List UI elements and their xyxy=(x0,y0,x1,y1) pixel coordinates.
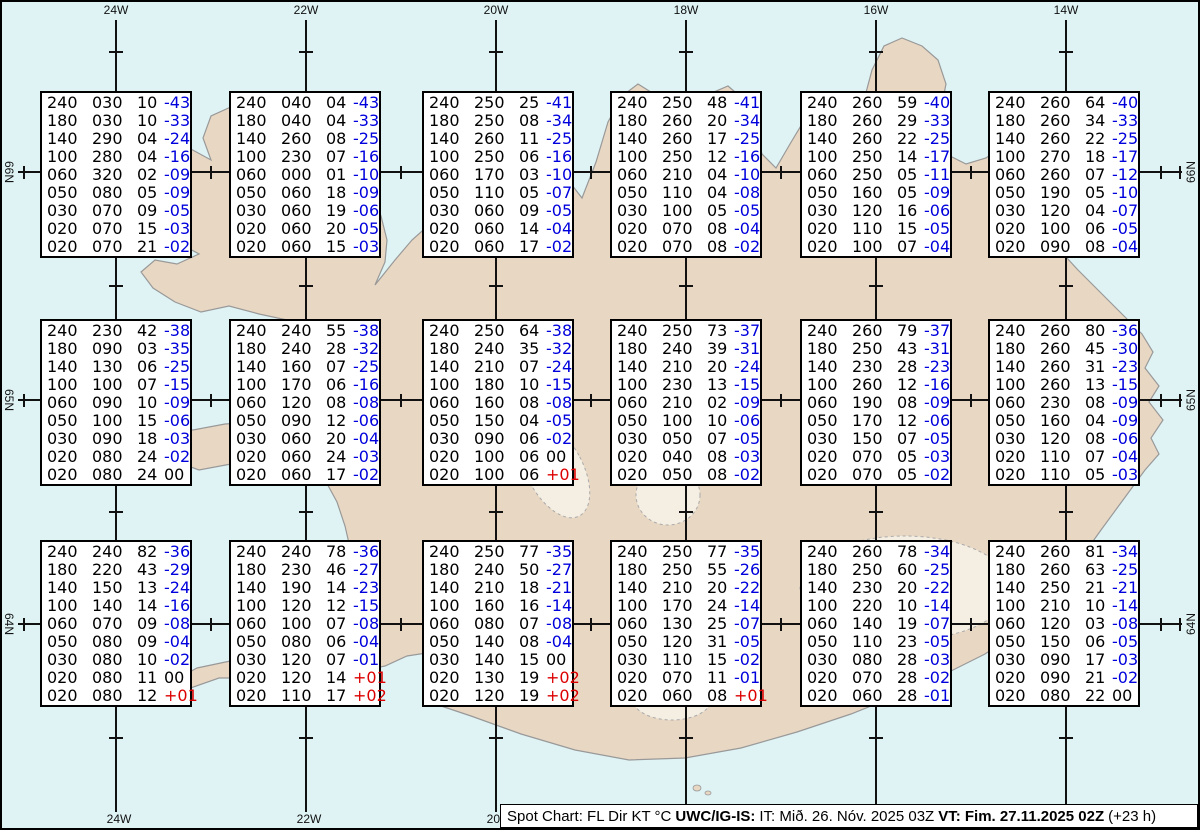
temp-cell: -02 xyxy=(546,238,578,256)
temp-cell: +01 xyxy=(164,687,204,705)
spot-row: 03006009-05 xyxy=(429,202,572,220)
kt-cell: 08 xyxy=(326,130,353,148)
temp-cell: -38 xyxy=(546,322,578,340)
dir-cell: 250 xyxy=(474,322,519,340)
dir-cell: 240 xyxy=(92,543,137,561)
temp-cell: -09 xyxy=(1112,394,1144,412)
fl-cell: 020 xyxy=(429,220,474,238)
dir-cell: 060 xyxy=(281,238,326,256)
spot-row: 18023046-27 xyxy=(236,561,379,579)
dir-cell: 040 xyxy=(281,94,326,112)
spot-row: 03008010-02 xyxy=(47,651,190,669)
fl-cell: 030 xyxy=(617,202,662,220)
kt-cell: 08 xyxy=(707,220,734,238)
fl-cell: 060 xyxy=(429,394,474,412)
temp-cell: -05 xyxy=(1112,633,1144,651)
temp-cell: -05 xyxy=(546,412,578,430)
fl-cell: 100 xyxy=(617,376,662,394)
fl-cell: 050 xyxy=(617,633,662,651)
dir-cell: 250 xyxy=(852,340,897,358)
temp-cell: -16 xyxy=(924,376,956,394)
fl-cell: 020 xyxy=(617,220,662,238)
kt-cell: 12 xyxy=(137,687,164,705)
spot-row: 05011004-08 xyxy=(617,184,760,202)
temp-cell: +01 xyxy=(734,687,774,705)
fl-cell: 050 xyxy=(429,633,474,651)
fl-cell: 140 xyxy=(429,579,474,597)
fl-cell: 240 xyxy=(995,543,1040,561)
fl-cell: 180 xyxy=(995,340,1040,358)
spot-row: 06021004-10 xyxy=(617,166,760,184)
dir-cell: 050 xyxy=(662,430,707,448)
temp-cell: -02 xyxy=(734,238,766,256)
dir-cell: 090 xyxy=(92,394,137,412)
spot-row: 24026078-34 xyxy=(807,543,950,561)
dir-cell: 260 xyxy=(1040,376,1085,394)
dir-cell: 240 xyxy=(281,340,326,358)
spot-boxes: 24003010-4318003010-3314029004-241002800… xyxy=(2,2,1198,828)
kt-cell: 06 xyxy=(326,376,353,394)
temp-cell: -06 xyxy=(924,202,956,220)
fl-cell: 140 xyxy=(995,358,1040,376)
dir-cell: 230 xyxy=(281,148,326,166)
kt-cell: 13 xyxy=(1085,376,1112,394)
kt-cell: 15 xyxy=(137,412,164,430)
temp-cell: -06 xyxy=(164,412,196,430)
fl-cell: 020 xyxy=(995,466,1040,484)
spot-row: 14021007-24 xyxy=(429,358,572,376)
fl-cell: 020 xyxy=(47,238,92,256)
temp-cell: -37 xyxy=(924,322,956,340)
footer-legend: Spot Chart: FL Dir KT °C xyxy=(507,808,671,825)
fl-cell: 240 xyxy=(807,322,852,340)
spot-row: 18026045-30 xyxy=(995,340,1138,358)
temp-cell: -43 xyxy=(164,94,196,112)
fl-cell: 030 xyxy=(429,651,474,669)
fl-cell: 020 xyxy=(236,220,281,238)
kt-cell: 59 xyxy=(897,94,924,112)
fl-cell: 030 xyxy=(995,651,1040,669)
dir-cell: 220 xyxy=(92,561,137,579)
temp-cell: -23 xyxy=(1112,358,1144,376)
fl-cell: 020 xyxy=(995,669,1040,687)
kt-cell: 06 xyxy=(1085,633,1112,651)
fl-cell: 140 xyxy=(236,579,281,597)
fl-cell: 060 xyxy=(47,615,92,633)
kt-cell: 17 xyxy=(519,238,546,256)
fl-cell: 020 xyxy=(47,220,92,238)
dir-cell: 060 xyxy=(281,430,326,448)
temp-cell: -02 xyxy=(353,466,385,484)
fl-cell: 050 xyxy=(47,184,92,202)
spot-row: 02007008-04 xyxy=(617,220,760,238)
fl-cell: 140 xyxy=(47,130,92,148)
kt-cell: 64 xyxy=(1085,94,1112,112)
kt-cell: 05 xyxy=(897,184,924,202)
kt-cell: 04 xyxy=(519,412,546,430)
kt-cell: 04 xyxy=(137,130,164,148)
fl-cell: 240 xyxy=(429,322,474,340)
spot-row: 02006014-04 xyxy=(429,220,572,238)
fl-cell: 020 xyxy=(236,687,281,705)
temp-cell: -08 xyxy=(353,615,385,633)
spot-row: 14026017-25 xyxy=(617,130,760,148)
fl-cell: 240 xyxy=(617,322,662,340)
kt-cell: 08 xyxy=(326,394,353,412)
dir-cell: 210 xyxy=(662,394,707,412)
kt-cell: 10 xyxy=(137,394,164,412)
spot-row: 02009008-04 xyxy=(995,238,1138,256)
fl-cell: 140 xyxy=(807,579,852,597)
temp-cell: -25 xyxy=(924,561,956,579)
spot-row: 18025055-26 xyxy=(617,561,760,579)
dir-cell: 080 xyxy=(1040,687,1085,705)
fl-cell: 050 xyxy=(429,184,474,202)
fl-cell: 180 xyxy=(617,340,662,358)
kt-cell: 06 xyxy=(519,148,546,166)
dir-cell: 040 xyxy=(281,112,326,130)
temp-cell: -32 xyxy=(546,340,578,358)
temp-cell: -05 xyxy=(546,202,578,220)
dir-cell: 120 xyxy=(662,633,707,651)
temp-cell: -04 xyxy=(353,430,385,448)
spot-row: 10026013-15 xyxy=(995,376,1138,394)
dir-cell: 230 xyxy=(852,579,897,597)
kt-cell: 15 xyxy=(519,651,546,669)
fl-cell: 180 xyxy=(617,561,662,579)
temp-cell: -06 xyxy=(924,412,956,430)
spot-row: 06012008-08 xyxy=(236,394,379,412)
temp-cell: -04 xyxy=(1112,448,1144,466)
dir-cell: 180 xyxy=(474,376,519,394)
dir-cell: 060 xyxy=(474,202,519,220)
fl-cell: 240 xyxy=(236,543,281,561)
kt-cell: 28 xyxy=(897,651,924,669)
dir-cell: 210 xyxy=(1040,597,1085,615)
fl-cell: 030 xyxy=(236,651,281,669)
kt-cell: 64 xyxy=(519,322,546,340)
spot-row: 10025006-16 xyxy=(429,148,572,166)
temp-cell: -04 xyxy=(1112,238,1144,256)
spot-row: 14021018-21 xyxy=(429,579,572,597)
temp-cell: -05 xyxy=(1112,220,1144,238)
temp-cell: -03 xyxy=(353,448,385,466)
dir-cell: 080 xyxy=(92,448,137,466)
kt-cell: 31 xyxy=(707,633,734,651)
temp-cell: -25 xyxy=(1112,130,1144,148)
temp-cell: -06 xyxy=(1112,430,1144,448)
footer-forecast-offset: (+23 h) xyxy=(1108,808,1156,825)
dir-cell: 080 xyxy=(474,615,519,633)
kt-cell: 11 xyxy=(519,130,546,148)
kt-cell: 06 xyxy=(519,466,546,484)
kt-cell: 10 xyxy=(897,597,924,615)
temp-cell: 00 xyxy=(1112,687,1138,705)
temp-cell: -08 xyxy=(1112,615,1144,633)
fl-cell: 140 xyxy=(236,130,281,148)
dir-cell: 050 xyxy=(662,466,707,484)
fl-cell: 020 xyxy=(236,448,281,466)
dir-cell: 190 xyxy=(1040,184,1085,202)
kt-cell: 03 xyxy=(1085,615,1112,633)
dir-cell: 110 xyxy=(852,220,897,238)
fl-cell: 020 xyxy=(617,669,662,687)
fl-cell: 060 xyxy=(236,166,281,184)
fl-cell: 240 xyxy=(47,322,92,340)
spot-row: 02012019+02 xyxy=(429,687,572,705)
kt-cell: 39 xyxy=(707,340,734,358)
dir-cell: 170 xyxy=(662,597,707,615)
dir-cell: 260 xyxy=(1040,561,1085,579)
kt-cell: 78 xyxy=(326,543,353,561)
spot-row: 18026063-25 xyxy=(995,561,1138,579)
fl-cell: 030 xyxy=(47,202,92,220)
spot-row: 06021002-09 xyxy=(617,394,760,412)
spot-row: 05010010-06 xyxy=(617,412,760,430)
dir-cell: 100 xyxy=(662,412,707,430)
kt-cell: 24 xyxy=(326,448,353,466)
fl-cell: 030 xyxy=(617,651,662,669)
fl-cell: 060 xyxy=(429,166,474,184)
fl-cell: 180 xyxy=(807,561,852,579)
dir-cell: 120 xyxy=(281,597,326,615)
fl-cell: 050 xyxy=(236,184,281,202)
kt-cell: 19 xyxy=(897,615,924,633)
dir-cell: 090 xyxy=(1040,669,1085,687)
temp-cell: -25 xyxy=(1112,561,1144,579)
dir-cell: 260 xyxy=(281,130,326,148)
dir-cell: 120 xyxy=(281,669,326,687)
kt-cell: 24 xyxy=(137,466,164,484)
temp-cell: -22 xyxy=(924,579,956,597)
spot-row: 06013025-07 xyxy=(617,615,760,633)
dir-cell: 100 xyxy=(92,412,137,430)
fl-cell: 240 xyxy=(995,94,1040,112)
temp-cell: +02 xyxy=(546,669,586,687)
spot-row: 02006008+01 xyxy=(617,687,760,705)
fl-cell: 060 xyxy=(995,394,1040,412)
dir-cell: 170 xyxy=(474,166,519,184)
fl-cell: 050 xyxy=(807,633,852,651)
temp-cell: -01 xyxy=(353,651,385,669)
spot-row: 05008009-04 xyxy=(47,633,190,651)
fl-cell: 180 xyxy=(617,112,662,130)
kt-cell: 25 xyxy=(519,94,546,112)
temp-cell: -31 xyxy=(734,340,766,358)
fl-cell: 140 xyxy=(47,358,92,376)
spot-row: 24023042-38 xyxy=(47,322,190,340)
temp-cell: -34 xyxy=(1112,543,1144,561)
kt-cell: 79 xyxy=(897,322,924,340)
temp-cell: -14 xyxy=(1112,597,1144,615)
temp-cell: -25 xyxy=(924,130,956,148)
dir-cell: 260 xyxy=(1040,358,1085,376)
temp-cell: -16 xyxy=(164,597,196,615)
temp-cell: -06 xyxy=(734,412,766,430)
kt-cell: 05 xyxy=(707,202,734,220)
kt-cell: 08 xyxy=(1085,238,1112,256)
dir-cell: 260 xyxy=(1040,112,1085,130)
kt-cell: 24 xyxy=(707,597,734,615)
dir-cell: 090 xyxy=(92,340,137,358)
kt-cell: 45 xyxy=(1085,340,1112,358)
dir-cell: 090 xyxy=(281,412,326,430)
dir-cell: 100 xyxy=(474,466,519,484)
temp-cell: -36 xyxy=(353,543,385,561)
kt-cell: 78 xyxy=(897,543,924,561)
dir-cell: 090 xyxy=(1040,651,1085,669)
fl-cell: 140 xyxy=(807,358,852,376)
spot-box: 24025077-3518024050-2714021018-211001601… xyxy=(422,540,574,707)
temp-cell: -03 xyxy=(164,430,196,448)
dir-cell: 080 xyxy=(92,184,137,202)
kt-cell: 55 xyxy=(707,561,734,579)
dir-cell: 120 xyxy=(852,202,897,220)
temp-cell: -05 xyxy=(924,430,956,448)
kt-cell: 20 xyxy=(707,579,734,597)
kt-cell: 63 xyxy=(1085,561,1112,579)
kt-cell: 08 xyxy=(707,687,734,705)
temp-cell: -25 xyxy=(734,130,766,148)
dir-cell: 110 xyxy=(474,184,519,202)
spot-row: 06032002-09 xyxy=(47,166,190,184)
kt-cell: 10 xyxy=(137,94,164,112)
spot-row: 14026008-25 xyxy=(236,130,379,148)
spot-row: 02006020-05 xyxy=(236,220,379,238)
spot-row: 14021020-22 xyxy=(617,579,760,597)
spot-row: 05009012-06 xyxy=(236,412,379,430)
dir-cell: 250 xyxy=(474,543,519,561)
spot-row: 14021020-24 xyxy=(617,358,760,376)
dir-cell: 140 xyxy=(852,615,897,633)
kt-cell: 08 xyxy=(897,394,924,412)
temp-cell: -32 xyxy=(353,340,385,358)
kt-cell: 19 xyxy=(326,202,353,220)
temp-cell: -05 xyxy=(734,430,766,448)
kt-cell: 17 xyxy=(326,687,353,705)
temp-cell: -33 xyxy=(924,112,956,130)
fl-cell: 020 xyxy=(236,669,281,687)
spot-row: 14013006-25 xyxy=(47,358,190,376)
spot-row: 05015004-05 xyxy=(429,412,572,430)
spot-row: 06023008-09 xyxy=(995,394,1138,412)
dir-cell: 260 xyxy=(1040,340,1085,358)
spot-row: 02004008-03 xyxy=(617,448,760,466)
dir-cell: 140 xyxy=(474,633,519,651)
fl-cell: 180 xyxy=(995,561,1040,579)
spot-row: 03012008-06 xyxy=(995,430,1138,448)
dir-cell: 060 xyxy=(281,202,326,220)
fl-cell: 100 xyxy=(617,597,662,615)
spot-row: 24026080-36 xyxy=(995,322,1138,340)
kt-cell: 24 xyxy=(137,448,164,466)
temp-cell: -09 xyxy=(164,184,196,202)
temp-cell: -25 xyxy=(164,358,196,376)
dir-cell: 060 xyxy=(474,220,519,238)
spot-row: 05008005-09 xyxy=(47,184,190,202)
temp-cell: -40 xyxy=(1112,94,1144,112)
dir-cell: 260 xyxy=(852,112,897,130)
fl-cell: 100 xyxy=(995,376,1040,394)
spot-row: 06010007-08 xyxy=(236,615,379,633)
fl-cell: 020 xyxy=(429,238,474,256)
dir-cell: 240 xyxy=(474,340,519,358)
kt-cell: 04 xyxy=(1085,202,1112,220)
dir-cell: 080 xyxy=(92,633,137,651)
fl-cell: 060 xyxy=(47,166,92,184)
kt-cell: 28 xyxy=(897,669,924,687)
dir-cell: 160 xyxy=(474,597,519,615)
fl-cell: 180 xyxy=(429,112,474,130)
dir-cell: 070 xyxy=(92,220,137,238)
kt-cell: 07 xyxy=(1085,448,1112,466)
spot-row: 10012012-15 xyxy=(236,597,379,615)
dir-cell: 230 xyxy=(662,376,707,394)
temp-cell: -17 xyxy=(924,148,956,166)
kt-cell: 82 xyxy=(137,543,164,561)
fl-cell: 050 xyxy=(236,412,281,430)
fl-cell: 020 xyxy=(429,448,474,466)
spot-box: 24025048-4118026020-3414026017-251002501… xyxy=(610,91,762,258)
spot-row: 02007008-02 xyxy=(617,238,760,256)
fl-cell: 140 xyxy=(617,579,662,597)
kt-cell: 10 xyxy=(707,412,734,430)
spot-box: 24026059-4018026029-3314026022-251002501… xyxy=(800,91,952,258)
fl-cell: 180 xyxy=(995,112,1040,130)
dir-cell: 240 xyxy=(281,322,326,340)
temp-cell: 00 xyxy=(164,669,190,687)
kt-cell: 12 xyxy=(707,148,734,166)
kt-cell: 42 xyxy=(137,322,164,340)
spot-row: 02007028-02 xyxy=(807,669,950,687)
temp-cell: -25 xyxy=(353,358,385,376)
temp-cell: -06 xyxy=(353,412,385,430)
dir-cell: 090 xyxy=(474,430,519,448)
fl-cell: 020 xyxy=(429,466,474,484)
temp-cell: -15 xyxy=(164,376,196,394)
dir-cell: 070 xyxy=(662,669,707,687)
spot-row: 05016004-09 xyxy=(995,412,1138,430)
spot-row: 10017024-14 xyxy=(617,597,760,615)
dir-cell: 250 xyxy=(474,148,519,166)
spot-row: 10010007-15 xyxy=(47,376,190,394)
spot-row: 02007005-03 xyxy=(807,448,950,466)
spot-row: 02006017-02 xyxy=(236,466,379,484)
spot-row: 14026022-25 xyxy=(995,130,1138,148)
temp-cell: -01 xyxy=(734,669,766,687)
spot-box: 24026080-3618026045-3014026031-231002601… xyxy=(988,319,1140,486)
temp-cell: -15 xyxy=(353,597,385,615)
kt-cell: 17 xyxy=(1085,651,1112,669)
dir-cell: 250 xyxy=(662,148,707,166)
kt-cell: 15 xyxy=(326,238,353,256)
fl-cell: 140 xyxy=(995,130,1040,148)
dir-cell: 070 xyxy=(852,466,897,484)
kt-cell: 21 xyxy=(137,238,164,256)
kt-cell: 02 xyxy=(707,394,734,412)
fl-cell: 060 xyxy=(807,615,852,633)
fl-cell: 140 xyxy=(429,358,474,376)
fl-cell: 030 xyxy=(807,202,852,220)
spot-row: 18004004-33 xyxy=(236,112,379,130)
kt-cell: 06 xyxy=(326,633,353,651)
kt-cell: 08 xyxy=(707,238,734,256)
temp-cell: -16 xyxy=(353,376,385,394)
dir-cell: 070 xyxy=(852,448,897,466)
temp-cell: -02 xyxy=(546,430,578,448)
temp-cell: -24 xyxy=(546,358,578,376)
temp-cell: -12 xyxy=(1112,166,1144,184)
